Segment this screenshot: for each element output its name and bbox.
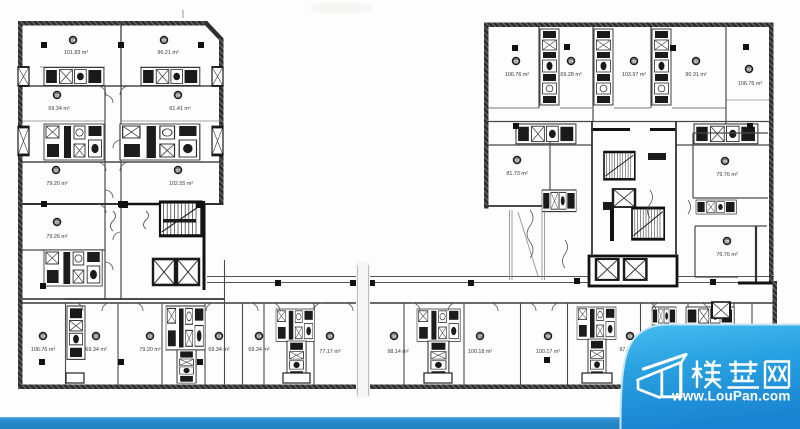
svg-text:13: 13	[217, 334, 221, 338]
svg-text:30: 30	[632, 59, 636, 63]
svg-text:21: 21	[55, 220, 59, 224]
svg-text:106.76 m²: 106.76 m²	[505, 72, 529, 78]
svg-text:35: 35	[725, 239, 729, 243]
svg-text:102.55 m²: 102.55 m²	[169, 181, 193, 187]
svg-text:106.76 m²: 106.76 m²	[738, 81, 762, 87]
svg-text:69.34 m²: 69.34 m²	[248, 347, 269, 353]
svg-text:69.34 m²: 69.34 m²	[48, 106, 69, 112]
svg-text:12: 12	[148, 334, 152, 338]
svg-text:79.26 m²: 79.26 m²	[46, 234, 67, 240]
svg-text:32: 32	[747, 67, 751, 71]
svg-text:22: 22	[54, 168, 58, 172]
svg-text:103.97 m²: 103.97 m²	[622, 72, 646, 78]
svg-text:15: 15	[328, 334, 332, 338]
svg-text:90.31 m²: 90.31 m²	[685, 72, 706, 78]
svg-text:69.34 m²: 69.34 m²	[85, 347, 106, 353]
svg-text:14: 14	[257, 334, 261, 338]
svg-text:23: 23	[55, 93, 59, 97]
svg-text:25: 25	[162, 38, 166, 42]
svg-text:61.41 m²: 61.41 m²	[169, 106, 190, 112]
svg-text:18: 18	[546, 334, 550, 338]
svg-text:69.28 m²: 69.28 m²	[560, 72, 581, 78]
svg-text:106.76 m²: 106.76 m²	[31, 347, 55, 353]
svg-text:26: 26	[176, 93, 180, 97]
svg-text:79.20 m²: 79.20 m²	[46, 181, 67, 187]
svg-text:www.LouPan.com: www.LouPan.com	[671, 389, 791, 404]
svg-text:100.18 m²: 100.18 m²	[468, 349, 492, 355]
svg-text:100.17 m²: 100.17 m²	[536, 349, 560, 355]
svg-text:79.76 m²: 79.76 m²	[716, 172, 737, 178]
svg-text:33: 33	[515, 158, 519, 162]
svg-text:79.20 m²: 79.20 m²	[139, 347, 160, 353]
svg-text:101.83 m²: 101.83 m²	[64, 50, 88, 56]
svg-text:34: 34	[723, 159, 727, 163]
svg-text:31: 31	[694, 59, 698, 63]
svg-text:28: 28	[514, 59, 518, 63]
svg-text:27: 27	[176, 168, 180, 172]
svg-text:10: 10	[41, 334, 45, 338]
svg-text:98.14 m²: 98.14 m²	[387, 349, 408, 355]
svg-text:69.34 m²: 69.34 m²	[208, 347, 229, 353]
svg-text:24: 24	[71, 38, 75, 42]
svg-text:29: 29	[569, 59, 573, 63]
svg-text:77.17 m²: 77.17 m²	[319, 349, 340, 355]
svg-text:76.76 m²: 76.76 m²	[716, 252, 737, 258]
svg-text:96.21 m²: 96.21 m²	[157, 50, 178, 56]
svg-text:11: 11	[94, 334, 98, 338]
svg-text:81.73 m²: 81.73 m²	[506, 171, 527, 177]
svg-text:19: 19	[628, 334, 632, 338]
svg-text:16: 16	[392, 334, 396, 338]
svg-text:17: 17	[478, 334, 482, 338]
